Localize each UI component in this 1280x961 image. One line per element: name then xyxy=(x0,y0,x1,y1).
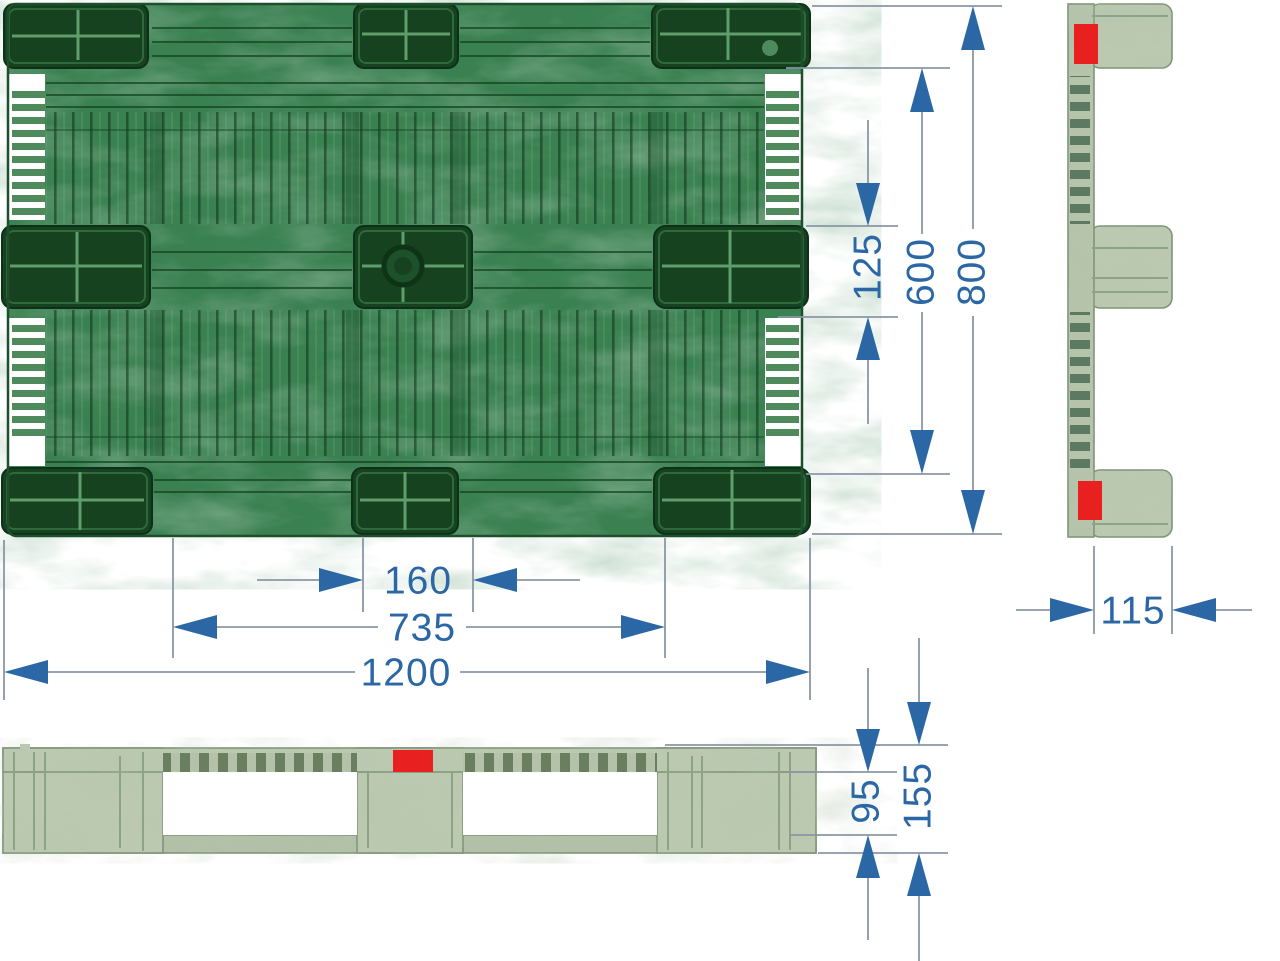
red-marker-side-top xyxy=(1074,24,1098,64)
pocket-post xyxy=(762,40,778,56)
side-view xyxy=(1066,2,1176,539)
red-marker-front xyxy=(393,750,433,772)
dim-label-115: 115 xyxy=(1100,590,1165,633)
dim-label-95: 95 xyxy=(845,778,888,823)
front-view xyxy=(3,744,816,853)
side-rib-slots-upper xyxy=(1070,76,1090,224)
red-marker-side-bottom xyxy=(1078,481,1102,520)
fork-opening-left xyxy=(163,772,357,835)
dim-label-600: 600 xyxy=(900,238,943,306)
fork-opening-right xyxy=(463,772,657,835)
top-view xyxy=(2,4,810,536)
dim-label-160: 160 xyxy=(384,560,452,603)
side-rib-slots-lower xyxy=(1070,312,1090,468)
dim-label-125: 125 xyxy=(847,233,890,301)
pallet-drawing: 1200 735 160 115 800 600 125 95 155 xyxy=(0,0,1280,961)
dim-label-155: 155 xyxy=(897,762,940,830)
dim-label-735: 735 xyxy=(388,607,456,650)
dim-label-1200: 1200 xyxy=(361,652,452,695)
drawing-canvas: 1200 735 160 115 800 600 125 95 155 xyxy=(0,0,1280,961)
dim-label-800: 800 xyxy=(951,238,994,306)
